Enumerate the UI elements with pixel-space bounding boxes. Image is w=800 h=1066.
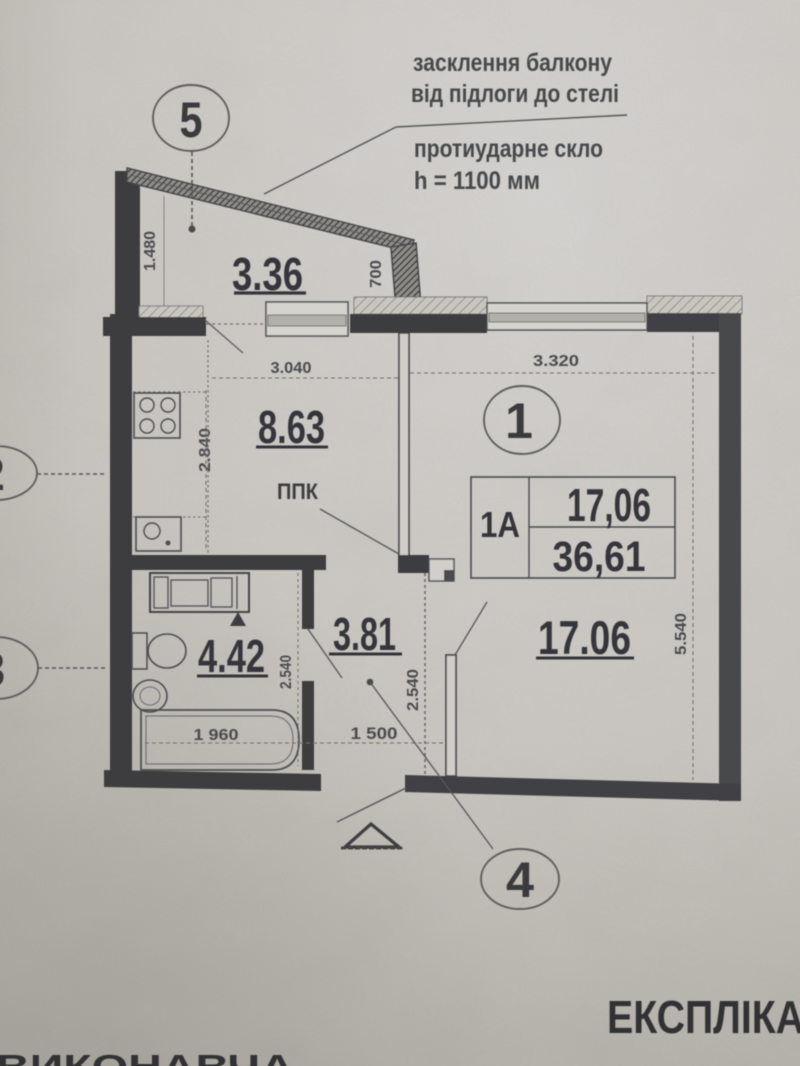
svg-text:ЕКСПЛІКАЦІЯ: ЕКСПЛІКАЦІЯ (607, 991, 800, 1043)
svg-text:від підлоги до стелі: від підлоги до стелі (411, 80, 619, 108)
svg-text:1 960: 1 960 (194, 727, 239, 744)
svg-text:засклення балкону: засклення балкону (413, 49, 612, 77)
svg-text:1 500: 1 500 (351, 724, 398, 743)
svg-text:2: 2 (0, 448, 5, 500)
svg-text:ВИКОНАВЧА: ВИКОНАВЧА (0, 1048, 294, 1066)
svg-text:1А: 1А (480, 504, 520, 545)
svg-text:4: 4 (506, 852, 534, 908)
svg-text:3.81: 3.81 (333, 608, 396, 660)
svg-text:4.42: 4.42 (198, 630, 265, 682)
svg-text:2.540: 2.540 (278, 655, 295, 689)
svg-text:1.480: 1.480 (142, 231, 159, 271)
svg-text:ППК: ППК (277, 479, 319, 504)
svg-text:8.63: 8.63 (258, 401, 325, 453)
svg-text:1: 1 (505, 393, 533, 449)
svg-text:2.540: 2.540 (405, 669, 422, 711)
svg-text:17.06: 17.06 (538, 611, 631, 664)
svg-text:3.040: 3.040 (271, 360, 312, 377)
svg-text:17,06: 17,06 (567, 479, 651, 531)
svg-text:36,61: 36,61 (553, 533, 646, 581)
svg-text:3: 3 (0, 644, 5, 697)
svg-text:5: 5 (180, 92, 203, 148)
svg-text:3.320: 3.320 (533, 353, 579, 370)
svg-text:h = 1100 мм: h = 1100 мм (414, 167, 540, 195)
svg-text:700: 700 (368, 260, 385, 288)
svg-text:протиударне скло: протиударне скло (414, 135, 603, 163)
svg-text:5.540: 5.540 (673, 613, 690, 655)
